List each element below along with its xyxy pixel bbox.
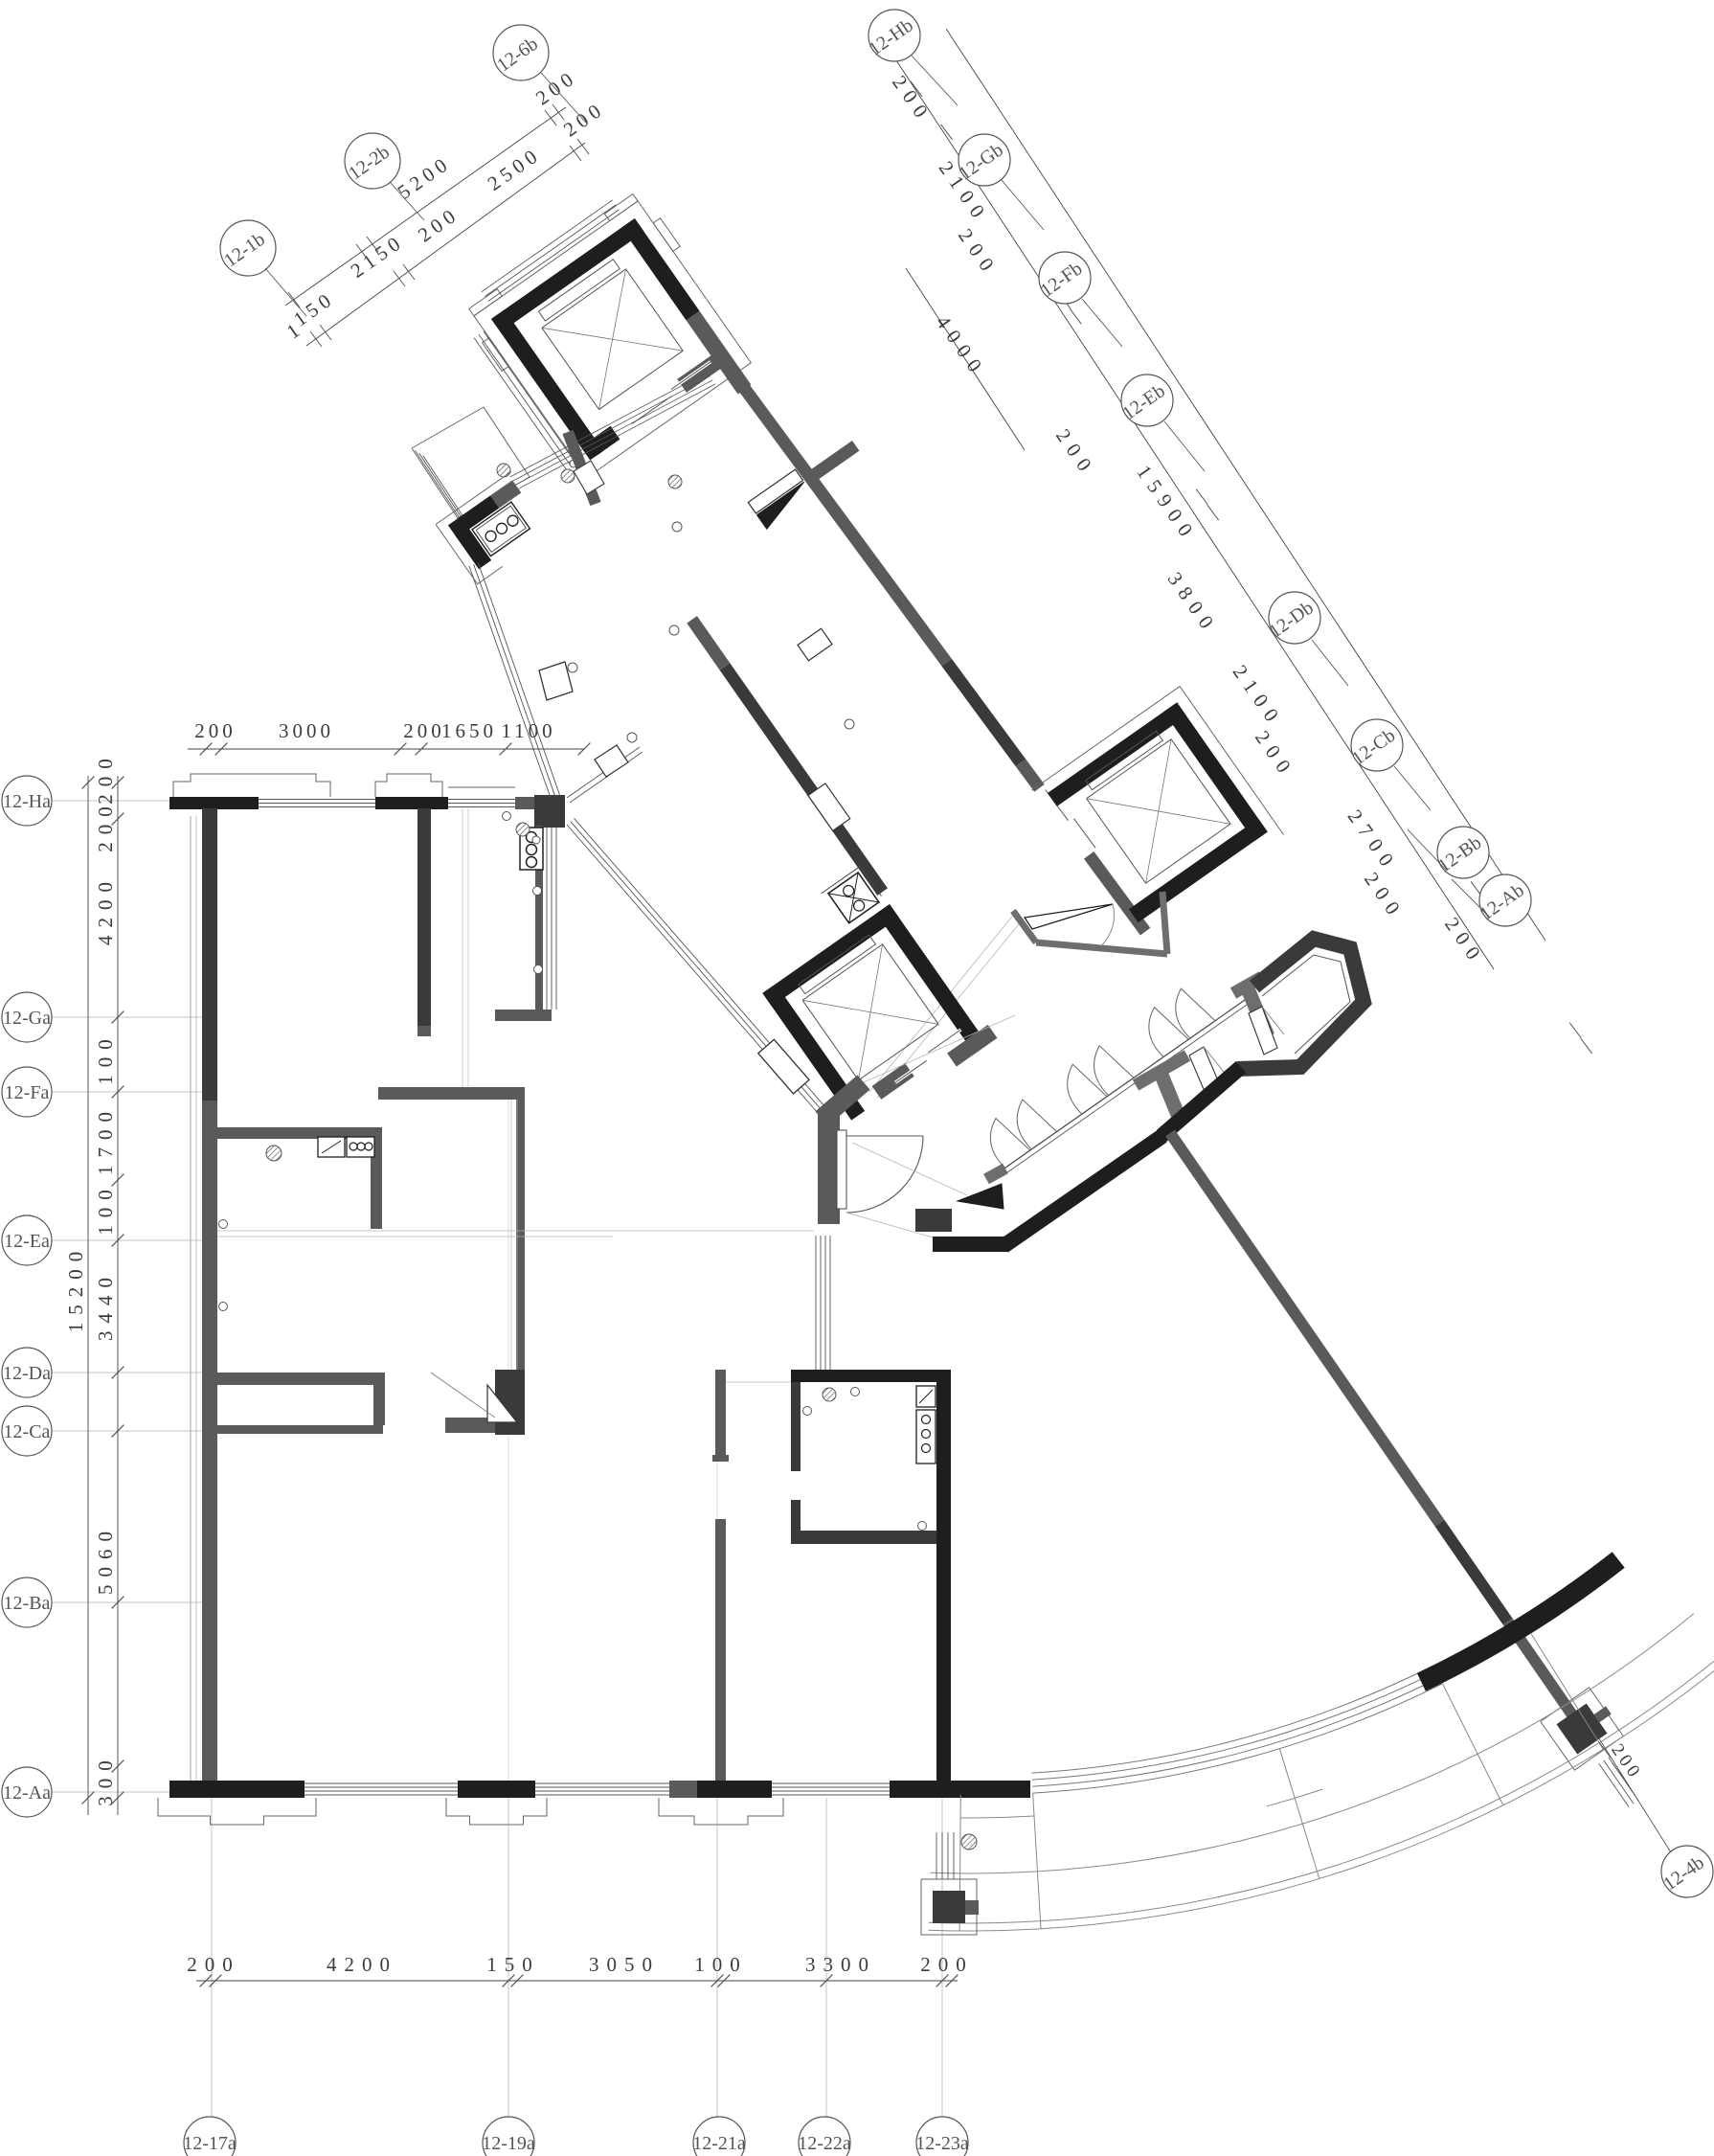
svg-text:12-Ga: 12-Ga xyxy=(3,1008,51,1029)
svg-text:100: 100 xyxy=(94,1182,117,1236)
svg-text:4200: 4200 xyxy=(94,874,117,945)
svg-text:12-Aa: 12-Aa xyxy=(3,1782,51,1804)
svg-text:100: 100 xyxy=(94,1032,117,1085)
svg-text:12-22a: 12-22a xyxy=(798,2133,851,2154)
svg-text:12-23a: 12-23a xyxy=(915,2133,969,2154)
svg-text:150: 150 xyxy=(486,1953,540,1976)
svg-text:12-Ea: 12-Ea xyxy=(4,1231,50,1252)
svg-text:300: 300 xyxy=(94,1753,117,1806)
svg-text:12-Ca: 12-Ca xyxy=(4,1421,51,1442)
svg-text:1700: 1700 xyxy=(94,1104,117,1175)
svg-text:12-Fa: 12-Fa xyxy=(5,1082,50,1103)
svg-text:3440: 3440 xyxy=(94,1270,117,1341)
svg-text:4200: 4200 xyxy=(327,1953,397,1976)
svg-text:3000: 3000 xyxy=(279,719,334,742)
svg-text:200: 200 xyxy=(403,719,445,742)
svg-text:200: 200 xyxy=(187,1953,240,1976)
svg-text:100: 100 xyxy=(694,1953,748,1976)
svg-text:3300: 3300 xyxy=(805,1953,876,1976)
svg-text:3050: 3050 xyxy=(589,1953,660,1976)
svg-text:12-17a: 12-17a xyxy=(183,2133,237,2154)
svg-text:12-Ba: 12-Ba xyxy=(4,1593,51,1614)
svg-text:12-21a: 12-21a xyxy=(692,2133,746,2154)
svg-text:12-Da: 12-Da xyxy=(3,1363,51,1384)
svg-text:5060: 5060 xyxy=(94,1524,117,1595)
svg-text:15200: 15200 xyxy=(64,1244,87,1333)
svg-text:200: 200 xyxy=(94,751,117,805)
svg-text:1100: 1100 xyxy=(501,719,555,742)
svg-text:12-Ha: 12-Ha xyxy=(3,791,51,812)
svg-text:12-19a: 12-19a xyxy=(482,2133,535,2154)
svg-text:1650: 1650 xyxy=(441,719,497,742)
svg-text:200: 200 xyxy=(94,799,117,852)
svg-text:200: 200 xyxy=(194,719,237,742)
svg-text:200: 200 xyxy=(920,1953,974,1976)
